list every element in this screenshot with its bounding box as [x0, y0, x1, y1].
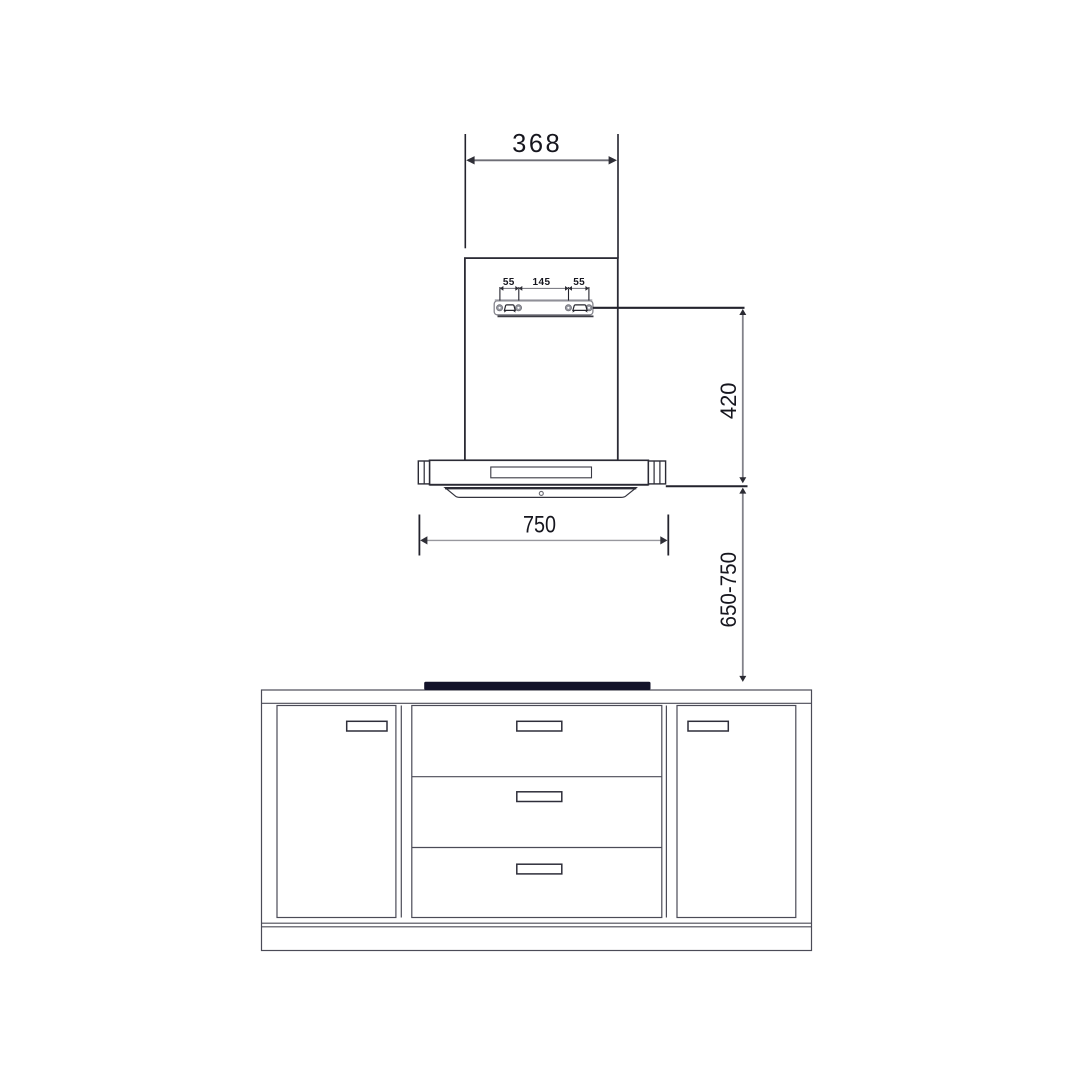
- svg-text:145: 145: [533, 277, 551, 288]
- svg-text:368: 368: [512, 130, 562, 158]
- svg-text:650-750: 650-750: [716, 552, 741, 628]
- svg-text:420: 420: [716, 382, 741, 419]
- svg-text:55: 55: [503, 277, 515, 288]
- svg-text:750: 750: [523, 512, 556, 539]
- svg-text:55: 55: [573, 277, 585, 288]
